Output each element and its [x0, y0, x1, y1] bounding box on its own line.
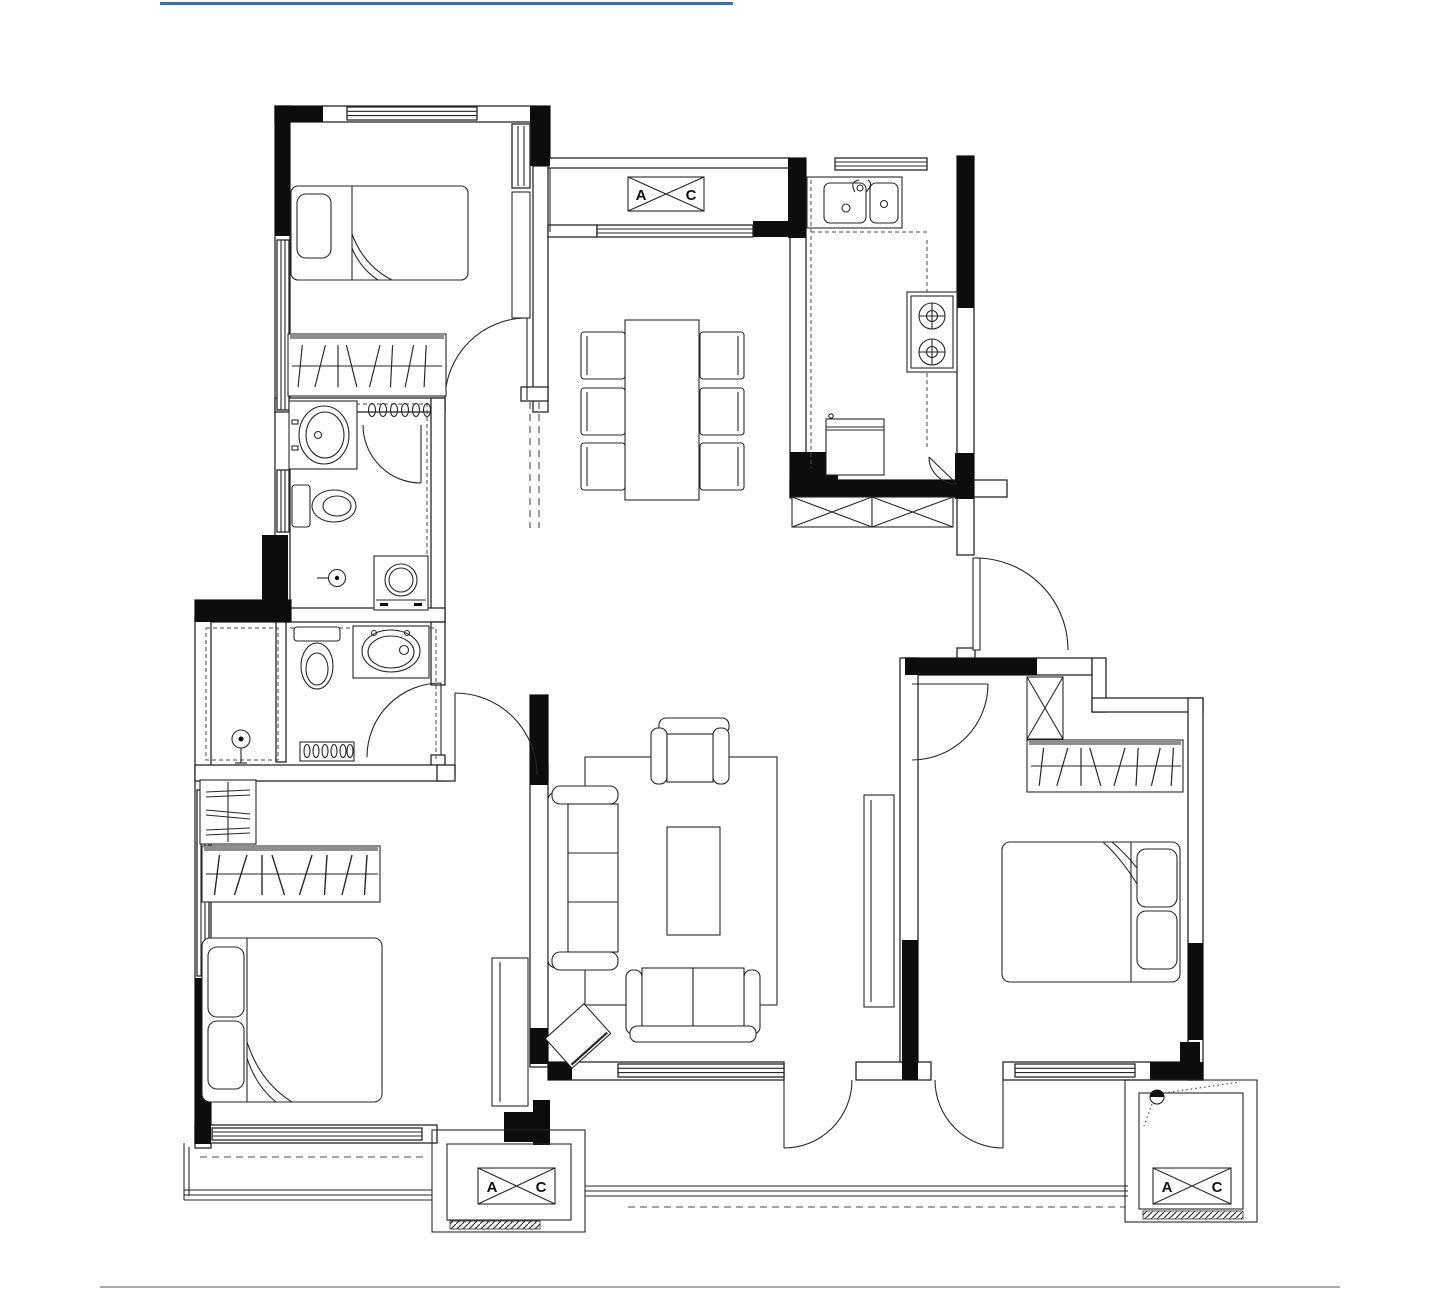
wall-panel — [512, 192, 530, 318]
washing-machine — [374, 556, 428, 610]
window — [277, 470, 289, 532]
window — [212, 1128, 422, 1140]
balcony-southwest — [184, 1143, 432, 1200]
living-room — [545, 718, 894, 1068]
wardrobe — [288, 334, 446, 396]
wardrobe-shelves — [200, 780, 256, 844]
wardrobe — [1027, 740, 1183, 792]
bedroom-bottom-right — [1002, 677, 1183, 982]
cabinet-boxes — [792, 497, 953, 527]
balcony-south — [585, 1186, 1128, 1207]
ac-label: A — [487, 1179, 498, 1196]
window — [835, 158, 927, 170]
double-bed — [1002, 842, 1180, 982]
armchair — [651, 718, 729, 784]
ac-label: C — [536, 1179, 547, 1196]
window — [597, 225, 753, 237]
dining-chair — [700, 443, 744, 490]
coffee-table — [667, 827, 720, 935]
washbasin — [353, 626, 429, 678]
side-table — [545, 1004, 610, 1069]
window — [618, 1064, 784, 1077]
door-balcony-left — [784, 1080, 852, 1148]
door-bedroom-bottom-left — [455, 693, 537, 775]
ac-label: C — [1212, 1179, 1223, 1196]
toilet — [294, 627, 340, 689]
entry-door — [973, 558, 1068, 650]
ac-platform-south: A C — [432, 1130, 585, 1232]
wardrobe — [202, 846, 380, 902]
ac-label: A — [1162, 1179, 1173, 1196]
floor-drain — [1144, 1082, 1240, 1126]
window — [277, 240, 289, 410]
door-balcony-right — [935, 1080, 1003, 1148]
door-bedroom-bottom-right — [912, 684, 988, 760]
shower-head — [232, 730, 250, 763]
washbasin — [289, 401, 357, 469]
floor-plan: A C — [0, 0, 1440, 1304]
double-bed — [202, 938, 382, 1102]
refrigerator — [826, 414, 884, 475]
window — [1015, 1064, 1135, 1077]
dining-chair — [581, 388, 625, 435]
ac-label: C — [686, 187, 697, 204]
dining-chair — [581, 332, 625, 379]
loveseat — [626, 968, 760, 1042]
ac-platform-southeast: A C — [1125, 1080, 1257, 1222]
page: A C — [0, 0, 1440, 1304]
towel-radiator — [300, 742, 354, 761]
bathroom-upper — [289, 401, 431, 610]
duct-box — [1027, 677, 1063, 739]
dining-table — [625, 320, 699, 500]
toilet — [292, 485, 356, 527]
kitchen-sink — [807, 177, 902, 228]
sofa-three-seat — [548, 786, 618, 970]
hatch-strip — [450, 1221, 540, 1229]
gas-stove — [907, 292, 957, 372]
bedroom-bottom-left — [200, 780, 528, 1106]
bottom-divider-line — [100, 1286, 1340, 1288]
bedroom-top-left — [288, 186, 530, 396]
shower-head — [317, 570, 346, 587]
ac-label: A — [636, 187, 647, 204]
dining-chair — [700, 388, 744, 435]
window — [512, 124, 530, 188]
door-bedroom-top-left — [445, 318, 527, 400]
tv-cabinet — [492, 958, 528, 1106]
door-bathroom-upper — [363, 425, 421, 483]
door-bathroom-lower — [367, 683, 441, 757]
ac-platform-top: A C — [550, 168, 704, 232]
hatch-strip — [1143, 1211, 1243, 1219]
dining-chair — [700, 332, 744, 379]
dining-chair — [581, 443, 625, 490]
window — [347, 107, 477, 120]
tv-cabinet — [864, 795, 894, 1007]
single-bed — [291, 186, 468, 280]
dining-area — [530, 320, 744, 528]
